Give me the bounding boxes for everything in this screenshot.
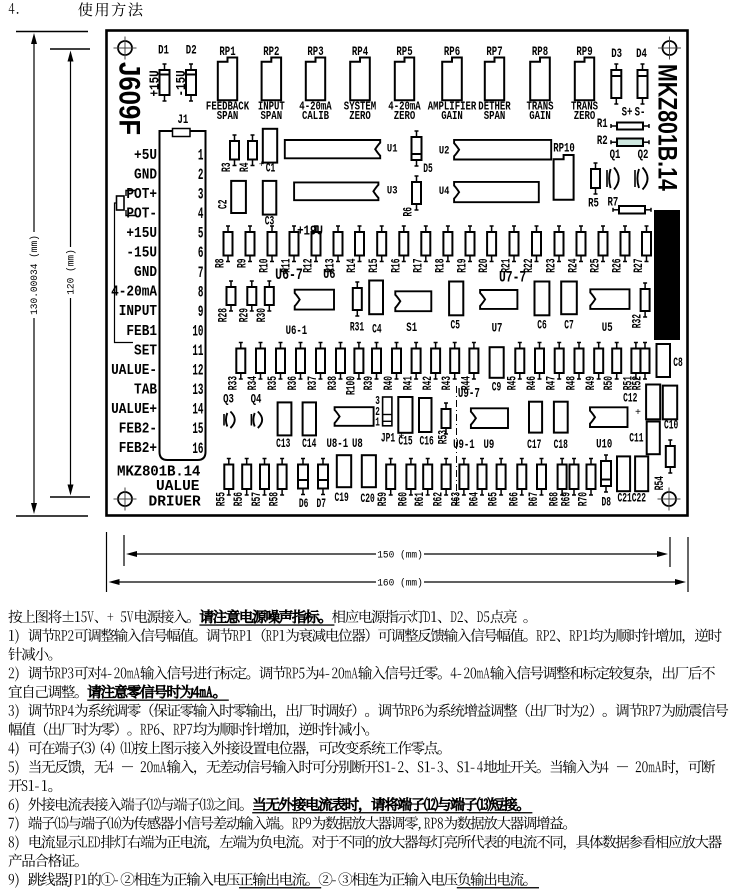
svg-text:S1: S1 bbox=[406, 322, 417, 336]
svg-text:R65: R65 bbox=[487, 492, 502, 506]
svg-text:R18: R18 bbox=[434, 259, 449, 273]
svg-text:R38: R38 bbox=[326, 376, 341, 390]
svg-text:R1: R1 bbox=[597, 118, 608, 132]
svg-text:R62: R62 bbox=[432, 492, 447, 506]
svg-text:U9: U9 bbox=[484, 439, 495, 453]
svg-text:R9: R9 bbox=[236, 259, 251, 269]
svg-text:6: 6 bbox=[198, 244, 204, 262]
svg-text:JP1: JP1 bbox=[381, 432, 396, 447]
svg-text:D5: D5 bbox=[423, 162, 433, 177]
svg-text:C20: C20 bbox=[360, 492, 374, 507]
svg-text:Q4: Q4 bbox=[251, 393, 262, 407]
svg-text:C10: C10 bbox=[664, 419, 678, 434]
svg-text:R10: R10 bbox=[258, 259, 273, 273]
svg-text:D2: D2 bbox=[186, 44, 197, 58]
svg-text:C15: C15 bbox=[398, 435, 412, 450]
svg-text:RP5: RP5 bbox=[396, 46, 412, 60]
svg-text:Q3: Q3 bbox=[223, 393, 234, 407]
svg-text:RP9: RP9 bbox=[576, 46, 592, 60]
svg-text:C4: C4 bbox=[372, 323, 382, 338]
svg-text:RP6: RP6 bbox=[444, 46, 460, 60]
svg-text:R4: R4 bbox=[238, 162, 253, 172]
svg-text:R30: R30 bbox=[255, 308, 270, 322]
svg-text:130.00034 (mm): 130.00034 (mm) bbox=[29, 235, 40, 315]
svg-text:FEB2+: FEB2+ bbox=[119, 440, 157, 457]
svg-text:R63: R63 bbox=[450, 492, 465, 506]
svg-text:R56: R56 bbox=[232, 492, 247, 506]
svg-text:FEB2-: FEB2- bbox=[119, 421, 157, 438]
svg-text:C6: C6 bbox=[537, 319, 547, 334]
svg-text:R28: R28 bbox=[217, 308, 232, 322]
svg-text:+5U: +5U bbox=[134, 147, 157, 164]
svg-text:150 (mm): 150 (mm) bbox=[377, 549, 423, 560]
svg-text:R3: R3 bbox=[220, 163, 235, 173]
svg-text:GND: GND bbox=[134, 264, 157, 281]
svg-text:120 (mm): 120 (mm) bbox=[65, 249, 76, 295]
svg-text:R23: R23 bbox=[545, 259, 560, 273]
svg-text:GAIN: GAIN bbox=[441, 110, 463, 124]
svg-text:RP1: RP1 bbox=[219, 46, 236, 60]
svg-text:RP8: RP8 bbox=[532, 46, 548, 60]
svg-text:R66: R66 bbox=[508, 492, 523, 506]
svg-text:9: 9 bbox=[198, 302, 204, 320]
svg-text:SPAN: SPAN bbox=[261, 110, 283, 124]
svg-text:RP7: RP7 bbox=[486, 46, 502, 60]
svg-text:RP3: RP3 bbox=[307, 46, 323, 60]
svg-text:R42: R42 bbox=[421, 376, 436, 390]
svg-text:SPAN: SPAN bbox=[484, 110, 506, 124]
svg-text:4-20mA: 4-20mA bbox=[111, 284, 157, 301]
svg-text:R14: R14 bbox=[345, 258, 360, 273]
svg-text:R29: R29 bbox=[238, 308, 253, 322]
svg-text:R43: R43 bbox=[440, 376, 455, 390]
svg-text:C17: C17 bbox=[527, 438, 541, 453]
svg-text:R67: R67 bbox=[527, 492, 542, 506]
svg-text:C13: C13 bbox=[276, 437, 290, 452]
svg-text:C14: C14 bbox=[302, 437, 317, 452]
svg-text:FEB1: FEB1 bbox=[126, 323, 157, 340]
svg-text:R45: R45 bbox=[506, 376, 521, 390]
svg-text:1: 1 bbox=[375, 416, 380, 429]
svg-text:R36: R36 bbox=[286, 376, 301, 390]
svg-text:ZERO: ZERO bbox=[349, 110, 371, 124]
svg-text:R16: R16 bbox=[390, 259, 405, 273]
svg-text:+: + bbox=[635, 408, 641, 419]
svg-text:R53: R53 bbox=[437, 430, 452, 444]
svg-text:R59: R59 bbox=[376, 492, 391, 506]
svg-text:C7: C7 bbox=[564, 319, 574, 334]
svg-text:R34: R34 bbox=[246, 376, 261, 391]
svg-text:U7-7: U7-7 bbox=[499, 269, 526, 287]
svg-text:U2: U2 bbox=[439, 145, 450, 157]
svg-text:R26: R26 bbox=[611, 259, 626, 273]
svg-text:10: 10 bbox=[192, 322, 203, 340]
svg-text:C3: C3 bbox=[265, 215, 275, 230]
svg-text:15: 15 bbox=[192, 420, 203, 438]
svg-text:C12: C12 bbox=[623, 392, 637, 407]
svg-text:UALUE: UALUE bbox=[156, 479, 200, 495]
svg-text:UALUE+: UALUE+ bbox=[111, 401, 157, 418]
svg-text:R6: R6 bbox=[402, 207, 417, 217]
svg-text:GND: GND bbox=[134, 167, 157, 184]
svg-text:C16: C16 bbox=[419, 435, 433, 450]
svg-text:U6-7: U6-7 bbox=[275, 266, 303, 284]
svg-text:UALUE-: UALUE- bbox=[111, 362, 157, 379]
svg-text:GAIN: GAIN bbox=[529, 110, 551, 124]
svg-text:ZERO: ZERO bbox=[394, 110, 416, 124]
svg-text:R17: R17 bbox=[412, 259, 427, 273]
svg-text:R15: R15 bbox=[367, 259, 382, 273]
svg-text:D7: D7 bbox=[317, 497, 327, 512]
svg-text:ZERO: ZERO bbox=[574, 110, 596, 124]
svg-text:R32: R32 bbox=[631, 314, 646, 328]
svg-text:5: 5 bbox=[198, 224, 204, 242]
svg-text:J1: J1 bbox=[178, 114, 189, 128]
svg-text:S+: S+ bbox=[622, 106, 633, 120]
svg-text:8: 8 bbox=[198, 283, 204, 301]
svg-text:U6: U6 bbox=[323, 267, 335, 283]
svg-text:R58: R58 bbox=[268, 492, 283, 506]
svg-text:-15U: -15U bbox=[126, 245, 157, 262]
svg-text:U6-1: U6-1 bbox=[286, 325, 308, 339]
svg-text:R8: R8 bbox=[214, 259, 229, 269]
svg-text:+15U: +15U bbox=[147, 70, 163, 96]
svg-text:D8: D8 bbox=[602, 496, 612, 511]
svg-text:U3: U3 bbox=[387, 185, 398, 197]
svg-text:3: 3 bbox=[198, 185, 204, 203]
svg-text:U10: U10 bbox=[596, 438, 612, 452]
svg-text:Q1: Q1 bbox=[610, 149, 621, 163]
svg-text:C8: C8 bbox=[673, 356, 683, 371]
svg-text:R35: R35 bbox=[266, 376, 281, 390]
svg-text:7: 7 bbox=[198, 263, 204, 281]
svg-text:R25: R25 bbox=[589, 259, 604, 273]
svg-text:DRIUER: DRIUER bbox=[149, 495, 202, 511]
svg-text:R41: R41 bbox=[402, 376, 417, 391]
svg-text:R40: R40 bbox=[382, 376, 397, 390]
svg-text:R54: R54 bbox=[653, 476, 668, 491]
svg-text:160 (mm): 160 (mm) bbox=[377, 577, 423, 588]
svg-text:R61: R61 bbox=[413, 492, 428, 507]
svg-text:R60: R60 bbox=[397, 492, 412, 506]
svg-text:U9-7: U9-7 bbox=[458, 386, 480, 401]
svg-text:R12: R12 bbox=[302, 259, 317, 273]
svg-text:R49: R49 bbox=[584, 376, 599, 390]
svg-text:R50: R50 bbox=[602, 376, 617, 390]
svg-text:C21C22: C21C22 bbox=[617, 492, 646, 507]
svg-text:Q2: Q2 bbox=[638, 149, 649, 163]
svg-text:R47: R47 bbox=[545, 376, 560, 390]
svg-text:R69: R69 bbox=[560, 492, 575, 506]
svg-text:U8: U8 bbox=[352, 438, 363, 452]
svg-text:13: 13 bbox=[192, 381, 203, 399]
svg-text:R2: R2 bbox=[597, 135, 608, 149]
svg-text:C2: C2 bbox=[217, 200, 232, 210]
svg-text:+15U: +15U bbox=[126, 225, 157, 242]
svg-text:U1: U1 bbox=[387, 143, 398, 155]
svg-text:U5: U5 bbox=[602, 322, 613, 336]
svg-text:POT+: POT+ bbox=[126, 186, 157, 203]
svg-text:R100: R100 bbox=[345, 376, 360, 395]
svg-text:12: 12 bbox=[192, 361, 203, 379]
svg-text:R52: R52 bbox=[631, 376, 646, 390]
svg-text:11: 11 bbox=[192, 342, 203, 360]
svg-text:SPAN: SPAN bbox=[217, 110, 239, 124]
svg-text:R57: R57 bbox=[250, 492, 265, 506]
svg-text:R19: R19 bbox=[456, 259, 471, 273]
svg-text:C18: C18 bbox=[554, 438, 568, 453]
svg-text:INPUT: INPUT bbox=[119, 303, 157, 320]
svg-text:D6: D6 bbox=[299, 497, 309, 512]
svg-text:R24: R24 bbox=[567, 258, 582, 273]
svg-text:U8-1: U8-1 bbox=[327, 438, 349, 452]
svg-text:R27: R27 bbox=[632, 259, 647, 273]
svg-text:CALIB: CALIB bbox=[302, 110, 330, 124]
svg-text:TAB: TAB bbox=[134, 382, 158, 399]
svg-text:MKZ801B.14: MKZ801B.14 bbox=[652, 64, 682, 191]
svg-text:R46: R46 bbox=[525, 376, 540, 390]
svg-text:U4: U4 bbox=[439, 185, 450, 197]
svg-text:D4: D4 bbox=[636, 48, 647, 62]
svg-text:U7: U7 bbox=[492, 322, 503, 336]
svg-text:R39: R39 bbox=[362, 376, 377, 390]
svg-text:R5: R5 bbox=[588, 197, 599, 211]
svg-text:1: 1 bbox=[198, 146, 204, 164]
svg-text:C5: C5 bbox=[450, 319, 460, 334]
svg-text:RP4: RP4 bbox=[352, 46, 369, 60]
svg-text:C19: C19 bbox=[334, 491, 348, 506]
svg-text:2: 2 bbox=[198, 166, 204, 184]
svg-text:R48: R48 bbox=[565, 376, 580, 390]
svg-text:16: 16 bbox=[192, 439, 203, 457]
svg-text:R20: R20 bbox=[477, 259, 492, 273]
svg-text:R31: R31 bbox=[350, 321, 365, 336]
svg-text:POT-: POT- bbox=[126, 206, 157, 223]
svg-text:4: 4 bbox=[198, 205, 204, 223]
svg-text:-15U: -15U bbox=[174, 70, 190, 96]
svg-text:C9: C9 bbox=[492, 381, 502, 396]
svg-text:D1: D1 bbox=[158, 44, 169, 58]
svg-text:C11: C11 bbox=[629, 432, 644, 447]
svg-text:R70: R70 bbox=[577, 492, 592, 506]
svg-text:S-: S- bbox=[635, 106, 646, 120]
svg-text:C1: C1 bbox=[266, 162, 276, 177]
svg-text:RP2: RP2 bbox=[263, 46, 279, 60]
svg-text:R64: R64 bbox=[468, 492, 483, 507]
svg-text:U9-1: U9-1 bbox=[453, 439, 475, 453]
svg-text:R55: R55 bbox=[215, 492, 230, 506]
svg-text:R33: R33 bbox=[227, 376, 242, 390]
svg-text:D3: D3 bbox=[611, 48, 622, 62]
svg-text:14: 14 bbox=[192, 400, 203, 418]
svg-text:R37: R37 bbox=[306, 376, 321, 390]
svg-text:SET: SET bbox=[134, 342, 157, 359]
svg-text:J609F: J609F bbox=[113, 62, 146, 135]
